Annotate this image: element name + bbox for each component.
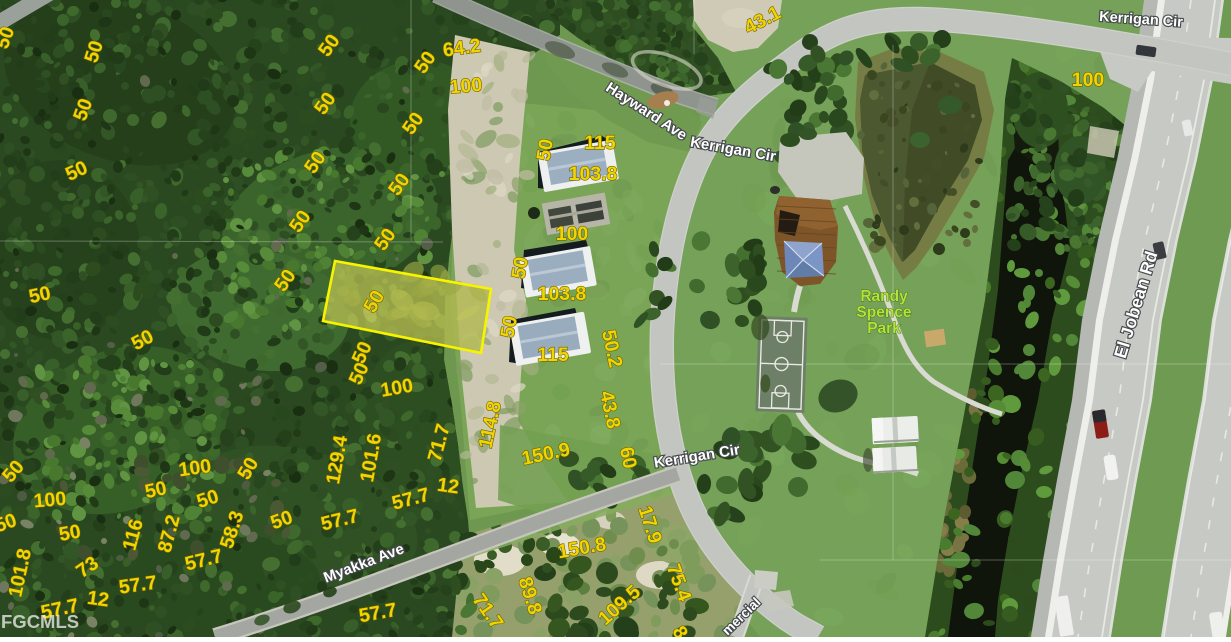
svg-text:Spence: Spence [856,304,912,321]
svg-text:50: 50 [27,282,53,308]
svg-text:50: 50 [143,477,169,503]
svg-text:103.8: 103.8 [538,283,587,305]
svg-text:103.8: 103.8 [569,163,618,185]
svg-text:50: 50 [496,314,521,339]
svg-text:100: 100 [556,223,589,245]
svg-text:115: 115 [584,132,616,154]
svg-text:60: 60 [615,445,641,471]
svg-text:12: 12 [436,474,461,499]
svg-text:100: 100 [33,488,67,513]
svg-text:12: 12 [86,587,111,612]
svg-text:50: 50 [57,520,82,545]
svg-text:Park: Park [867,320,901,337]
svg-text:100: 100 [449,74,483,99]
svg-text:100: 100 [1072,69,1105,91]
svg-text:50: 50 [507,255,532,280]
svg-text:FGCMLS: FGCMLS [1,611,79,632]
svg-text:100: 100 [177,455,212,481]
svg-text:115: 115 [537,344,569,366]
svg-text:Randy: Randy [860,288,908,305]
svg-text:50: 50 [532,137,557,162]
